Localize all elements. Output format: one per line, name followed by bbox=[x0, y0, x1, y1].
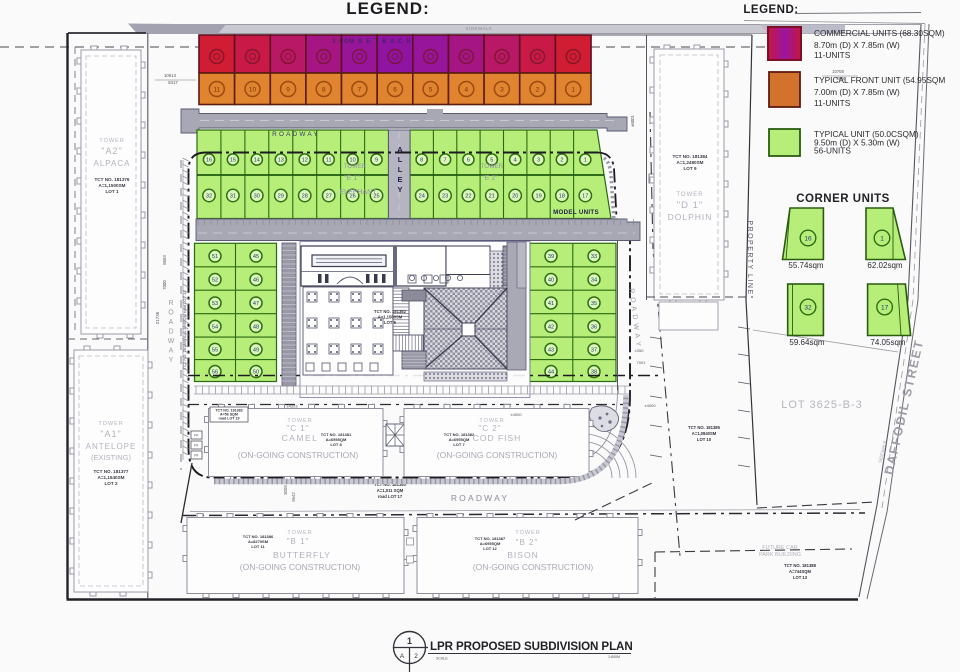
svg-text:8: 8 bbox=[322, 87, 326, 94]
svg-text:TCT NO. 181376: TCT NO. 181376 bbox=[95, 177, 130, 182]
svg-text:46: 46 bbox=[253, 278, 259, 284]
svg-text:COMMERCIAL UNITS (68.30SQM): COMMERCIAL UNITS (68.30SQM) bbox=[814, 28, 945, 38]
svg-text:ANTELOPE: ANTELOPE bbox=[86, 442, 137, 451]
svg-text:(ON-GOING CONSTRUCTION): (ON-GOING CONSTRUCTION) bbox=[473, 562, 594, 572]
svg-text:A=1,1500SM: A=1,1500SM bbox=[378, 315, 403, 320]
svg-text:33: 33 bbox=[591, 254, 597, 260]
svg-text:FF: FF bbox=[194, 434, 198, 438]
svg-text:7.00m (D) X 7.85m (W): 7.00m (D) X 7.85m (W) bbox=[814, 87, 900, 97]
svg-text:"A1": "A1" bbox=[100, 429, 121, 439]
svg-text:32: 32 bbox=[206, 194, 212, 200]
svg-text:55: 55 bbox=[212, 347, 218, 353]
svg-text:TCT NO. 181385: TCT NO. 181385 bbox=[688, 425, 721, 430]
svg-text:4: 4 bbox=[464, 87, 468, 94]
svg-text:1: 1 bbox=[584, 158, 587, 164]
svg-text:23: 23 bbox=[442, 194, 448, 200]
svg-text:15: 15 bbox=[230, 158, 236, 164]
svg-text:10708: 10708 bbox=[832, 69, 844, 74]
svg-text:3: 3 bbox=[500, 87, 504, 94]
svg-text:3: 3 bbox=[537, 158, 540, 164]
svg-text:W: W bbox=[168, 338, 175, 345]
svg-text:34: 34 bbox=[591, 278, 597, 284]
svg-text:7: 7 bbox=[358, 87, 362, 94]
svg-text:6: 6 bbox=[393, 87, 397, 94]
svg-text:TCT NO. 181384: TCT NO. 181384 bbox=[673, 154, 708, 159]
svg-text:1:600M: 1:600M bbox=[608, 655, 620, 659]
svg-text:"D 1": "D 1" bbox=[677, 200, 704, 211]
svg-text:4: 4 bbox=[514, 158, 517, 164]
svg-text:5: 5 bbox=[429, 87, 433, 94]
svg-text:13: 13 bbox=[278, 158, 284, 164]
svg-text:44: 44 bbox=[548, 370, 554, 376]
svg-text:TOWER: TOWER bbox=[676, 192, 703, 198]
svg-text:"C 2": "C 2" bbox=[478, 424, 501, 433]
svg-text:±4000: ±4000 bbox=[510, 412, 522, 417]
svg-text:7001: 7001 bbox=[637, 360, 647, 365]
svg-text:11: 11 bbox=[213, 87, 220, 94]
svg-text:"A2": "A2" bbox=[101, 146, 122, 156]
svg-text:"B 2": "B 2" bbox=[516, 538, 539, 547]
svg-text:A: A bbox=[169, 348, 174, 355]
svg-text:LOT 13: LOT 13 bbox=[793, 575, 808, 580]
svg-text:"B 1": "B 1" bbox=[287, 537, 310, 546]
svg-text:A=1,1540SM: A=1,1540SM bbox=[98, 475, 125, 480]
svg-text:(EXISTING): (EXISTING) bbox=[91, 453, 132, 462]
svg-text:8693: 8693 bbox=[162, 255, 167, 265]
svg-text:11-UNITS: 11-UNITS bbox=[814, 50, 851, 60]
svg-text:18: 18 bbox=[559, 194, 565, 200]
svg-text:11: 11 bbox=[326, 158, 332, 164]
svg-text:74.05sqm: 74.05sqm bbox=[870, 338, 905, 347]
svg-text:LOT 7: LOT 7 bbox=[453, 442, 465, 447]
svg-text:Y: Y bbox=[169, 357, 174, 364]
svg-text:ELEPHANT: ELEPHANT bbox=[340, 189, 378, 196]
svg-text:24: 24 bbox=[419, 194, 425, 200]
svg-text:ROADWAY: ROADWAY bbox=[272, 131, 320, 138]
svg-text:27: 27 bbox=[326, 194, 332, 200]
svg-text:LOT 2: LOT 2 bbox=[104, 481, 117, 486]
svg-text:49: 49 bbox=[253, 347, 259, 353]
svg-text:LOT 9: LOT 9 bbox=[683, 166, 696, 171]
svg-text:54: 54 bbox=[212, 325, 218, 331]
svg-text:CORNER UNITS: CORNER UNITS bbox=[796, 193, 890, 205]
svg-text:56-UNITS: 56-UNITS bbox=[814, 146, 851, 156]
svg-text:2: 2 bbox=[536, 87, 540, 94]
svg-text:45: 45 bbox=[253, 254, 259, 260]
svg-text:6642: 6642 bbox=[291, 492, 296, 502]
svg-text:A=1,2480SM: A=1,2480SM bbox=[677, 160, 704, 165]
svg-text:O: O bbox=[168, 310, 174, 317]
svg-text:L: L bbox=[398, 155, 403, 164]
svg-text:16: 16 bbox=[804, 236, 812, 243]
svg-text:50: 50 bbox=[253, 370, 259, 376]
svg-text:10: 10 bbox=[249, 87, 257, 94]
svg-text:LOT 3625-B-3: LOT 3625-B-3 bbox=[781, 399, 863, 411]
svg-text:TOWER: TOWER bbox=[515, 530, 540, 536]
svg-text:5: 5 bbox=[490, 158, 493, 164]
svg-text:17: 17 bbox=[582, 194, 588, 200]
svg-text:COD FISH: COD FISH bbox=[473, 433, 522, 443]
svg-text:2: 2 bbox=[560, 158, 563, 164]
svg-text:2: 2 bbox=[414, 653, 418, 660]
svg-text:TOWER: TOWER bbox=[98, 421, 123, 427]
svg-text:A=1,0840SM: A=1,0840SM bbox=[692, 431, 717, 436]
svg-text:(ON-GOING CONSTRUCTION): (ON-GOING CONSTRUCTION) bbox=[437, 450, 558, 460]
svg-text:14: 14 bbox=[254, 158, 260, 164]
svg-text:43: 43 bbox=[548, 347, 554, 353]
svg-text:12: 12 bbox=[302, 158, 308, 164]
svg-text:LOT 12: LOT 12 bbox=[483, 546, 497, 551]
svg-text:SCALE: SCALE bbox=[436, 657, 448, 661]
svg-text:BUTTERFLY: BUTTERFLY bbox=[273, 550, 331, 560]
svg-text:LOT 5: LOT 5 bbox=[384, 320, 397, 325]
svg-text:"E 1": "E 1" bbox=[344, 175, 360, 182]
svg-text:39: 39 bbox=[548, 254, 554, 260]
svg-text:7000: 7000 bbox=[162, 280, 167, 290]
svg-text:40: 40 bbox=[548, 278, 554, 284]
svg-text:E: E bbox=[397, 175, 402, 184]
svg-text:1: 1 bbox=[880, 236, 884, 243]
svg-text:TOWER: TOWER bbox=[344, 164, 367, 170]
svg-text:(ON-GOING CONSTRUCTION): (ON-GOING CONSTRUCTION) bbox=[240, 562, 361, 572]
svg-text:SIDEWALK: SIDEWALK bbox=[465, 26, 492, 31]
svg-text:28: 28 bbox=[302, 194, 308, 200]
svg-text:R: R bbox=[168, 300, 173, 307]
svg-text:37: 37 bbox=[591, 347, 597, 353]
svg-text:10613: 10613 bbox=[164, 73, 177, 78]
svg-text:51: 51 bbox=[212, 254, 218, 260]
svg-text:53: 53 bbox=[212, 301, 218, 307]
svg-text:TCT NO. 181377: TCT NO. 181377 bbox=[94, 469, 129, 474]
svg-text:DOLPHIN: DOLPHIN bbox=[668, 212, 713, 222]
svg-text:road LOT 17: road LOT 17 bbox=[378, 494, 403, 499]
svg-text:16: 16 bbox=[206, 158, 212, 164]
svg-text:TOWER: TOWER bbox=[99, 138, 124, 144]
svg-text:A=1,1500SM: A=1,1500SM bbox=[99, 183, 126, 188]
svg-text:20: 20 bbox=[512, 194, 518, 200]
svg-text:21736: 21736 bbox=[155, 311, 160, 324]
svg-text:L: L bbox=[398, 165, 403, 174]
svg-text:19: 19 bbox=[535, 194, 541, 200]
svg-text:8417: 8417 bbox=[168, 80, 178, 85]
svg-text:30: 30 bbox=[254, 194, 260, 200]
svg-text:LOT 8: LOT 8 bbox=[330, 442, 342, 447]
svg-text:10: 10 bbox=[349, 158, 355, 164]
svg-text:47: 47 bbox=[253, 301, 259, 307]
svg-text:35: 35 bbox=[591, 301, 597, 307]
svg-text:"E 2": "E 2" bbox=[482, 175, 498, 182]
svg-text:LEGEND:: LEGEND: bbox=[346, 0, 430, 18]
svg-text:LOT 11: LOT 11 bbox=[251, 544, 265, 549]
svg-text:8.70m (D) X 7.85m (W): 8.70m (D) X 7.85m (W) bbox=[814, 40, 900, 50]
svg-text:ALPACA: ALPACA bbox=[94, 159, 131, 168]
svg-text:Y: Y bbox=[397, 185, 402, 194]
svg-text:LOT 1: LOT 1 bbox=[105, 189, 118, 194]
svg-text:A: A bbox=[169, 319, 174, 326]
svg-text:42: 42 bbox=[548, 325, 554, 331]
svg-text:"C 1": "C 1" bbox=[286, 424, 309, 433]
svg-text:TYPICAL FRONT UNIT (54.95SQM: TYPICAL FRONT UNIT (54.95SQM bbox=[814, 75, 945, 85]
svg-text:1: 1 bbox=[407, 636, 412, 646]
svg-text:A: A bbox=[400, 653, 405, 660]
svg-text:52: 52 bbox=[212, 278, 218, 284]
svg-text:48: 48 bbox=[253, 325, 259, 331]
svg-text:road LOT 19: road LOT 19 bbox=[219, 417, 240, 421]
svg-text:9: 9 bbox=[375, 158, 378, 164]
svg-text:TCT NO. 181388: TCT NO. 181388 bbox=[784, 563, 817, 568]
svg-text:±4000: ±4000 bbox=[644, 403, 656, 408]
svg-text:±4323: ±4323 bbox=[286, 404, 298, 409]
svg-text:PARK BUILDING: PARK BUILDING bbox=[759, 552, 801, 558]
svg-text:±350: ±350 bbox=[635, 348, 645, 353]
svg-text:8: 8 bbox=[420, 158, 423, 164]
svg-text:32: 32 bbox=[804, 305, 812, 312]
svg-text:22: 22 bbox=[465, 194, 471, 200]
svg-text:56: 56 bbox=[212, 370, 218, 376]
svg-text:PROPERTY LINE: PROPERTY LINE bbox=[746, 220, 753, 295]
svg-text:CAMEL: CAMEL bbox=[282, 433, 319, 443]
svg-text:±6001: ±6001 bbox=[630, 114, 635, 127]
svg-text:FUTURE CAR: FUTURE CAR bbox=[762, 545, 797, 551]
svg-text:6: 6 bbox=[467, 158, 470, 164]
svg-text:55.74sqm: 55.74sqm bbox=[788, 261, 823, 270]
svg-text:LOT 10: LOT 10 bbox=[697, 437, 712, 442]
svg-text:TCT NO. 181382: TCT NO. 181382 bbox=[374, 309, 407, 314]
svg-text:9: 9 bbox=[286, 87, 290, 94]
svg-text:41: 41 bbox=[548, 301, 554, 307]
svg-text:TOWER: TOWER bbox=[481, 164, 504, 170]
svg-text:36: 36 bbox=[591, 325, 597, 331]
svg-text:FF: FF bbox=[194, 454, 198, 458]
svg-text:59.64sqm: 59.64sqm bbox=[789, 338, 824, 347]
svg-text:A=1,011 SQM: A=1,011 SQM bbox=[377, 488, 404, 493]
svg-text:LPR PROPOSED SUBDIVISION PLAN: LPR PROPOSED SUBDIVISION PLAN bbox=[430, 640, 633, 653]
svg-text:D: D bbox=[168, 329, 173, 336]
svg-text:A=744SQM: A=744SQM bbox=[789, 569, 812, 574]
svg-text:3.00M S E T B A C K: 3.00M S E T B A C K bbox=[332, 38, 412, 45]
svg-text:62.02sqm: 62.02sqm bbox=[867, 261, 902, 270]
svg-text:7: 7 bbox=[444, 158, 447, 164]
svg-text:ROADWAY: ROADWAY bbox=[451, 493, 509, 503]
svg-text:17: 17 bbox=[881, 305, 889, 312]
svg-text:TOWER: TOWER bbox=[287, 530, 312, 536]
svg-text:11-UNITS: 11-UNITS bbox=[814, 98, 851, 108]
svg-text:31: 31 bbox=[230, 194, 236, 200]
svg-text:LEGEND:: LEGEND: bbox=[743, 4, 798, 16]
svg-text:1: 1 bbox=[571, 87, 575, 94]
svg-text:29: 29 bbox=[278, 194, 284, 200]
svg-text:8008: 8008 bbox=[283, 485, 288, 495]
svg-text:BISON: BISON bbox=[507, 550, 538, 560]
svg-text:(ON-GOING CONSTRUCTION): (ON-GOING CONSTRUCTION) bbox=[238, 450, 359, 460]
svg-text:MODEL UNITS: MODEL UNITS bbox=[553, 209, 599, 216]
svg-text:21: 21 bbox=[489, 194, 495, 200]
svg-text:38: 38 bbox=[591, 370, 597, 376]
svg-text:FF: FF bbox=[194, 444, 198, 448]
